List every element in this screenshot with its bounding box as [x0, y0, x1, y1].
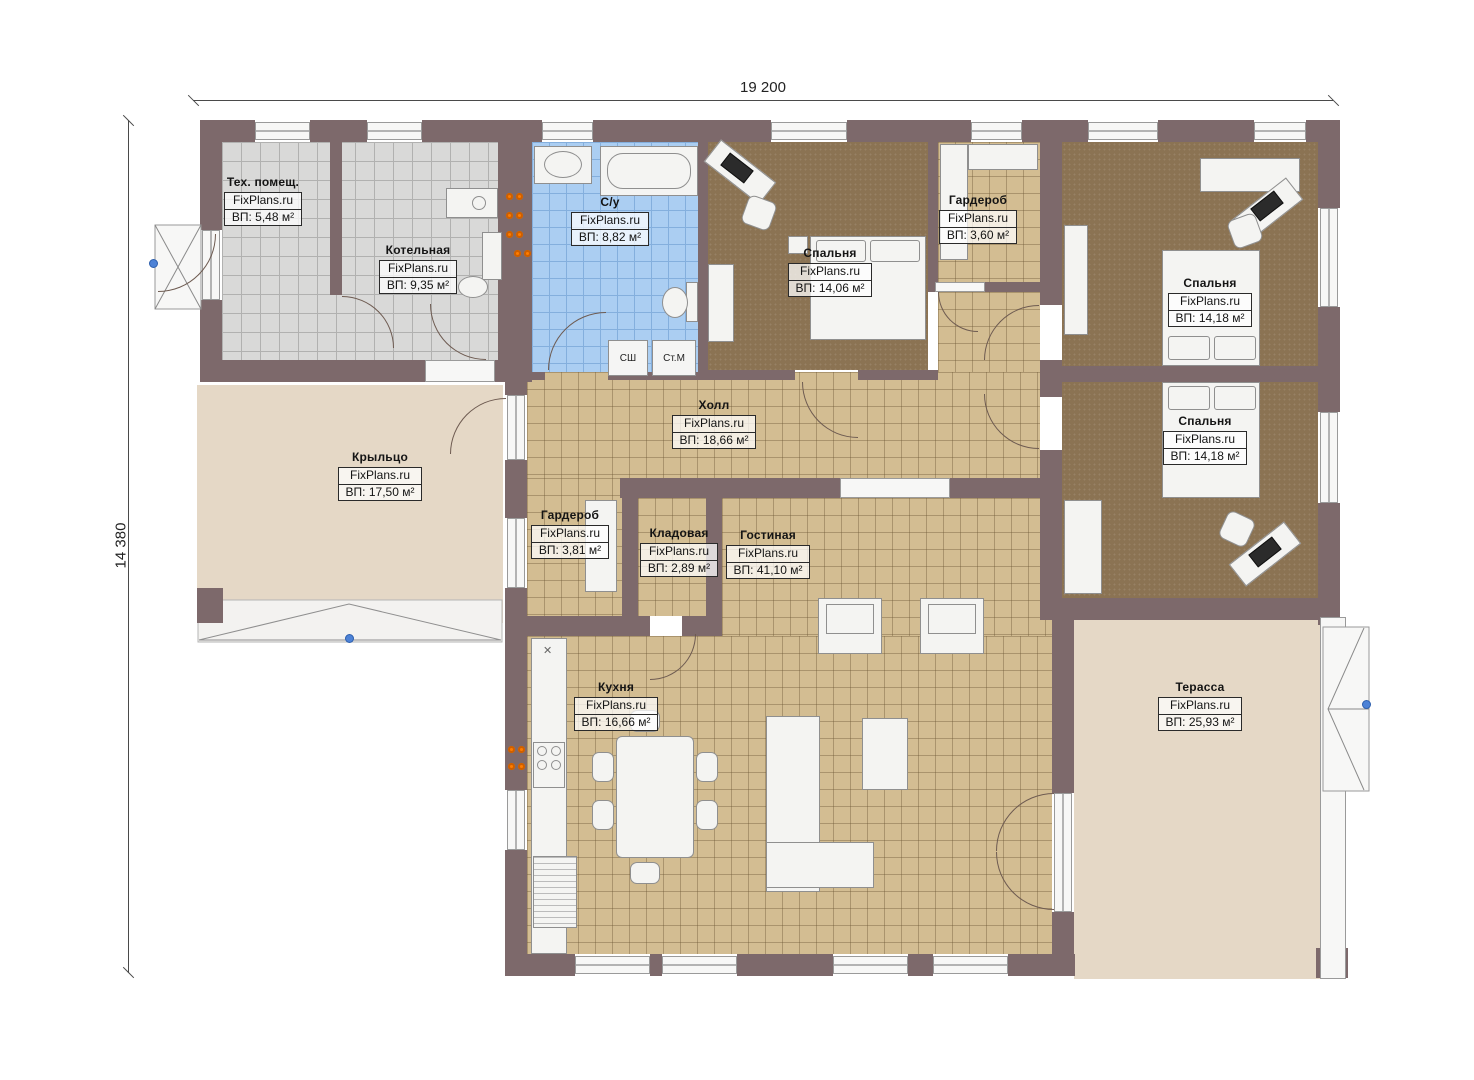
bathtub-basin	[607, 153, 691, 189]
boiler-hall-opening	[425, 360, 495, 382]
coffee-table	[862, 718, 908, 790]
radiator	[508, 746, 525, 753]
room-watermark: FixPlans.ru	[380, 261, 456, 278]
room-label-kitchen: Кухня FixPlans.ru ВП: 16,66 м²	[561, 681, 671, 731]
wardrobe-opening	[935, 282, 985, 292]
room-area: ВП: 2,89 м²	[641, 561, 717, 577]
dimension-height-label: 14 380	[113, 491, 130, 601]
window	[255, 122, 310, 140]
room-label-bedroom-right-bottom: Спальня FixPlans.ru ВП: 14,18 м²	[1150, 415, 1260, 465]
window	[542, 122, 593, 140]
closet	[1064, 500, 1102, 594]
radiator	[506, 193, 523, 200]
wall-segment	[620, 478, 840, 498]
stove-burner	[551, 746, 561, 756]
room-area: ВП: 16,66 м²	[575, 715, 658, 731]
wall-segment	[310, 120, 367, 142]
stove-burner	[537, 746, 547, 756]
wall-segment	[1062, 366, 1318, 382]
pillow	[1168, 386, 1210, 410]
window	[933, 956, 1008, 974]
wall-segment	[698, 370, 795, 380]
room-watermark: FixPlans.ru	[225, 193, 301, 210]
armchair-seat	[928, 604, 976, 634]
room-watermark: FixPlans.ru	[572, 213, 648, 230]
wall-segment	[847, 120, 971, 142]
room-label-wardrobe-top: Гардероб FixPlans.ru ВП: 3,60 м²	[923, 194, 1033, 244]
room-name: Гардероб	[923, 194, 1033, 208]
wall-segment	[1318, 307, 1340, 412]
terrace-window	[1322, 626, 1370, 792]
sofa-chaise	[766, 842, 874, 888]
window	[662, 956, 737, 974]
wall-segment	[650, 954, 662, 976]
room-watermark: FixPlans.ru	[532, 526, 608, 543]
porch-door-opening	[507, 395, 525, 460]
room-label-hall: Холл FixPlans.ru ВП: 18,66 м²	[659, 399, 769, 449]
room-watermark: FixPlans.ru	[641, 544, 717, 561]
armchair-seat	[826, 604, 874, 634]
room-watermark: FixPlans.ru	[575, 698, 658, 715]
wall-segment	[682, 616, 706, 636]
floor-porch	[197, 385, 503, 623]
room-label-bathroom: С/у FixPlans.ru ВП: 8,82 м²	[555, 196, 665, 246]
wall-segment	[1040, 360, 1062, 397]
dining-chair	[696, 800, 718, 830]
wall-segment	[1040, 142, 1062, 305]
dimension-line-top	[193, 100, 1333, 101]
radiator	[506, 212, 523, 219]
stove-burner	[551, 760, 561, 770]
room-name: Котельная	[363, 244, 473, 258]
radiator	[508, 763, 525, 770]
room-area: ВП: 14,18 м²	[1164, 449, 1247, 465]
dining-chair	[592, 752, 614, 782]
room-name: Гостиная	[713, 529, 823, 543]
wall-segment	[950, 478, 1062, 498]
room-area: ВП: 8,82 м²	[572, 230, 648, 246]
wall-segment	[505, 954, 575, 976]
room-label-living: Гостиная FixPlans.ru ВП: 41,10 м²	[713, 529, 823, 579]
window	[971, 122, 1022, 140]
wall-segment	[638, 616, 650, 636]
room-watermark: FixPlans.ru	[940, 211, 1016, 228]
floor-plan: 19 200 14 380	[0, 0, 1474, 1080]
room-area: ВП: 3,81 м²	[532, 543, 608, 559]
closet	[1064, 225, 1088, 335]
pillow	[1168, 336, 1210, 360]
wall-segment	[1040, 450, 1062, 620]
room-watermark: FixPlans.ru	[1169, 294, 1252, 311]
radiator	[506, 231, 523, 238]
room-watermark: FixPlans.ru	[339, 468, 422, 485]
stove-burner	[537, 760, 547, 770]
wall-segment	[1318, 138, 1340, 208]
dining-table	[616, 736, 694, 858]
window	[367, 122, 422, 140]
room-area: ВП: 5,48 м²	[225, 210, 301, 226]
window	[575, 956, 650, 974]
wall-segment	[698, 142, 708, 378]
sink-icon	[544, 151, 582, 178]
room-area: ВП: 14,18 м²	[1169, 311, 1252, 327]
closet	[708, 264, 734, 342]
marker-dot	[1362, 700, 1371, 709]
room-label-wardrobe-mid: Гардероб FixPlans.ru ВП: 3,81 м²	[515, 509, 625, 559]
dryer-unit: СШ	[608, 340, 648, 376]
toilet-icon	[662, 287, 688, 318]
boiler-dial-icon	[472, 196, 486, 210]
terrace-door-opening	[1054, 793, 1072, 912]
wall-segment	[1052, 912, 1074, 956]
room-label-porch: Крыльцо FixPlans.ru ВП: 17,50 м²	[325, 451, 435, 501]
window	[507, 790, 525, 850]
wall-segment	[330, 142, 342, 295]
room-watermark: FixPlans.ru	[1159, 698, 1242, 715]
washer-label: Ст.М	[663, 353, 685, 364]
wall-segment	[1008, 954, 1075, 976]
window	[1254, 122, 1306, 140]
wall-segment	[505, 588, 527, 790]
wall-segment	[593, 120, 771, 142]
wall-segment	[985, 282, 1040, 292]
room-watermark: FixPlans.ru	[673, 416, 756, 433]
room-area: ВП: 17,50 м²	[339, 485, 422, 501]
marker-dot	[345, 634, 354, 643]
marker-dot	[149, 259, 158, 268]
room-name: Тех. помещ.	[208, 176, 318, 190]
wall-segment	[505, 382, 527, 395]
room-watermark: FixPlans.ru	[1164, 432, 1247, 449]
dining-chair	[696, 752, 718, 782]
window	[771, 122, 847, 140]
dryer-label: СШ	[620, 353, 636, 364]
room-label-bedroom-right-top: Спальня FixPlans.ru ВП: 14,18 м²	[1155, 277, 1265, 327]
hall-living-opening	[840, 478, 950, 498]
room-label-bedroom-top: Спальня FixPlans.ru ВП: 14,06 м²	[775, 247, 885, 297]
room-area: ВП: 18,66 м²	[673, 433, 756, 449]
washer-unit: Ст.М	[652, 340, 696, 376]
wall-segment	[505, 120, 542, 142]
room-area: ВП: 3,60 м²	[940, 228, 1016, 244]
room-watermark: FixPlans.ru	[727, 546, 810, 563]
floor-terrace	[1074, 617, 1320, 979]
dining-chair	[592, 800, 614, 830]
wall-segment	[858, 370, 938, 380]
wall-segment	[908, 954, 933, 976]
window	[1320, 208, 1338, 307]
room-name: Спальня	[1150, 415, 1260, 429]
pillow	[1214, 336, 1256, 360]
wardrobe-shelving	[968, 144, 1038, 170]
pillow	[1214, 386, 1256, 410]
room-name: Спальня	[775, 247, 885, 261]
wall-segment	[1022, 120, 1088, 142]
wall-segment	[1040, 598, 1340, 620]
room-name: Крыльцо	[325, 451, 435, 465]
wall-segment	[200, 300, 222, 362]
dimension-width-label: 19 200	[703, 79, 823, 96]
room-name: Кухня	[561, 681, 671, 695]
room-label-terrace: Терасса FixPlans.ru ВП: 25,93 м²	[1145, 681, 1255, 731]
room-watermark: FixPlans.ru	[789, 264, 872, 281]
room-name: Спальня	[1155, 277, 1265, 291]
wall-segment	[1052, 617, 1074, 793]
dining-chair	[630, 862, 660, 884]
window	[833, 956, 908, 974]
room-name: Терасса	[1145, 681, 1255, 695]
room-area: ВП: 25,93 м²	[1159, 715, 1242, 731]
wall-segment	[1158, 120, 1254, 142]
room-area: ВП: 14,06 м²	[789, 281, 872, 297]
wall-segment	[737, 954, 833, 976]
wall-segment	[532, 372, 545, 380]
wall-segment	[197, 588, 223, 623]
room-name: С/у	[555, 196, 665, 210]
porch-gable	[197, 592, 503, 652]
radiator	[514, 250, 531, 257]
window	[1320, 412, 1338, 503]
boiler-unit	[482, 232, 502, 280]
room-label-boiler: Котельная FixPlans.ru ВП: 9,35 м²	[363, 244, 473, 294]
room-label-tech: Тех. помещ. FixPlans.ru ВП: 5,48 м²	[208, 176, 318, 226]
room-name: Гардероб	[515, 509, 625, 523]
floor-hall	[527, 372, 1040, 478]
fridge-icon	[533, 856, 577, 928]
kitchen-sink-icon: ✕	[543, 644, 552, 657]
room-name: Холл	[659, 399, 769, 413]
window	[1088, 122, 1158, 140]
room-area: ВП: 9,35 м²	[380, 278, 456, 294]
room-area: ВП: 41,10 м²	[727, 563, 810, 579]
